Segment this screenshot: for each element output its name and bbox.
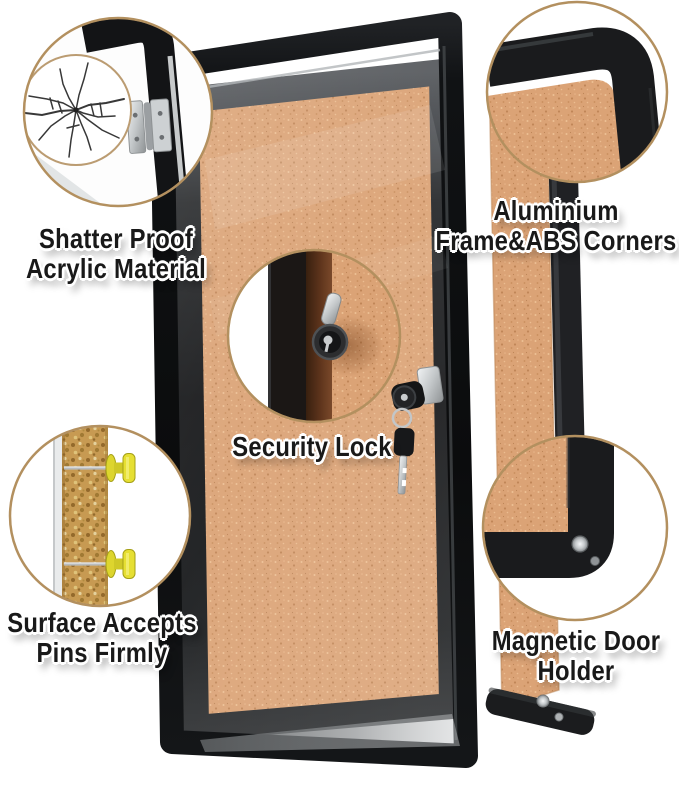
security-lock-bubble (228, 250, 400, 422)
hinge-icon (126, 99, 172, 154)
cork-cross-section (62, 426, 108, 606)
magnet-icon (555, 713, 563, 721)
callout-line: Shatter Proof (26, 224, 206, 254)
magnetic-holder-bubble (483, 436, 667, 620)
crack-icon (21, 55, 131, 165)
product-feature-image: Shatter Proof Acrylic Material Aluminium… (0, 0, 679, 795)
callout-security-lock-label: Security Lock (232, 432, 391, 462)
callout-line: Surface Accepts (7, 608, 196, 638)
lock-cylinder-zoom-icon (313, 325, 347, 359)
callout-line: Acrylic Material (26, 254, 206, 284)
callout-shatter-proof-label: Shatter Proof Acrylic Material (26, 224, 206, 284)
magnet-icon (537, 695, 549, 707)
callout-aluminium-frame-label: Aluminium Frame&ABS Corners (435, 196, 676, 256)
callout-magnetic-holder-label: Magnetic Door Holder (492, 626, 661, 686)
callout-line: Aluminium (435, 196, 676, 226)
callout-line: Holder (492, 656, 661, 686)
callout-line: Security Lock (232, 432, 391, 462)
magnet-icon (572, 536, 588, 552)
callout-surface-pins-label: Surface Accepts Pins Firmly (7, 608, 196, 668)
magnet-icon (591, 557, 600, 566)
frame-corner-bubble (487, 2, 667, 182)
callout-line: Frame&ABS Corners (435, 226, 676, 256)
pins-bubble (10, 426, 190, 606)
callout-line: Pins Firmly (7, 638, 196, 668)
shatter-proof-bubble (21, 18, 212, 210)
callout-line: Magnetic Door (492, 626, 661, 656)
